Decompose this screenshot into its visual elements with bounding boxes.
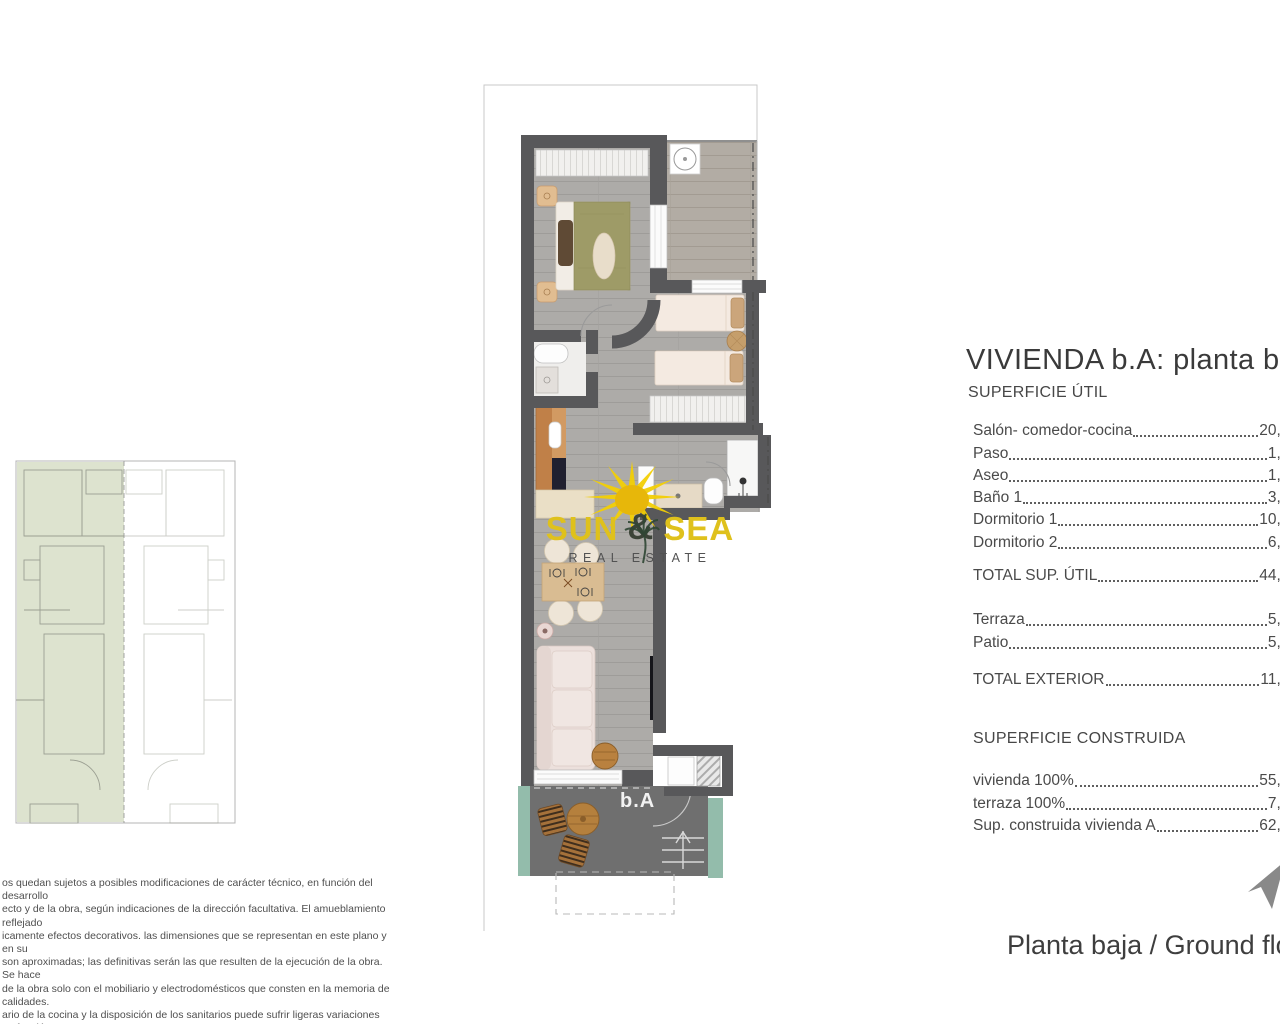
kitchen-sink: [549, 422, 561, 448]
extractor-fan-icon: [670, 144, 700, 174]
unit-label: b.A: [620, 790, 655, 813]
surface-row: Salón- comedor-cocina 20,81: [973, 418, 1280, 440]
dotted-leader: [1075, 785, 1258, 787]
surface-value: 10,01: [1259, 511, 1280, 529]
wardrobe: [536, 150, 648, 176]
surface-label: terraza 100%: [973, 795, 1065, 813]
surface-label: Dormitorio 2: [973, 534, 1057, 552]
surface-total-row: TOTAL EXTERIOR 11,27: [973, 667, 1280, 689]
north-arrow-icon: [1248, 861, 1280, 909]
surface-table: Salón- comedor-cocina 20,81 Paso 1,35 As…: [973, 418, 1280, 835]
washbasin: [536, 367, 558, 393]
surface-row: Dormitorio 1 10,01: [973, 507, 1280, 529]
surface-row: vivienda 100% 55,31: [973, 768, 1280, 790]
single-bed: [655, 351, 743, 385]
sofa: [537, 646, 595, 770]
surface-row: Dormitorio 2 6,83: [973, 529, 1280, 551]
nightstand: [537, 282, 557, 302]
dining-chair: [549, 601, 574, 626]
section-header-useful: SUPERFICIE ÚTIL: [968, 384, 1108, 402]
disclaimer-line: de la obra solo con el mobiliario y elec…: [2, 983, 394, 1009]
surface-value: 5,72: [1268, 611, 1280, 629]
surface-total-row: TOTAL SUP. ÚTIL 44,29: [973, 563, 1280, 585]
shower-head: [740, 478, 747, 485]
disclaimer-line: ario de la cocina y la disposición de lo…: [2, 1009, 394, 1024]
planter-strip: [518, 786, 530, 876]
key-plan-highlighted-unit: [17, 462, 124, 822]
nightstand: [537, 186, 557, 206]
key-plan: [16, 461, 235, 823]
surface-row: terraza 100% 7,54: [973, 790, 1280, 812]
dotted-leader: [1098, 580, 1258, 582]
legal-disclaimer: os quedan sujetos a posibles modificacio…: [2, 877, 394, 1024]
surface-label: TOTAL SUP. ÚTIL: [973, 567, 1097, 585]
logo-word-sun: SUN: [546, 512, 619, 545]
bathtub: [534, 344, 568, 363]
surface-value: 1,35: [1268, 445, 1280, 463]
double-bed: [556, 202, 630, 290]
surface-value: 1,68: [1268, 467, 1280, 485]
dotted-leader: [1133, 435, 1258, 437]
disclaimer-line: ecto y de la obra, según indicaciones de…: [2, 903, 394, 929]
brochure-page: SUN&SEA REAL ESTATE b.A VIVIENDA b.A: pl…: [0, 0, 1280, 1024]
surface-value: 6,83: [1268, 534, 1280, 552]
surface-label: Dormitorio 1: [973, 511, 1057, 529]
surface-label: Paso: [973, 445, 1008, 463]
surface-label: Patio: [973, 634, 1008, 652]
dotted-leader: [1058, 524, 1258, 526]
surface-row: Terraza 5,72: [973, 607, 1280, 629]
surface-label: Baño 1: [973, 489, 1022, 507]
dotted-leader: [1106, 684, 1260, 686]
logo-tagline: REAL ESTATE: [540, 551, 740, 565]
logo-word-sea: SEA: [663, 512, 734, 545]
surface-label: Salón- comedor-cocina: [973, 422, 1132, 440]
dotted-leader: [1009, 480, 1266, 482]
surface-value: 55,31: [1259, 772, 1280, 790]
surface-value: 7,54: [1268, 795, 1280, 813]
surface-row: Aseo 1,68: [973, 463, 1280, 485]
surface-label: Aseo: [973, 467, 1008, 485]
dotted-leader: [1066, 808, 1267, 810]
bedroom2: [650, 295, 747, 422]
disclaimer-line: son aproximadas; las definitivas serán l…: [2, 956, 394, 982]
surface-value: 20,81: [1259, 422, 1280, 440]
disclaimer-line: os quedan sujetos a posibles modificacio…: [2, 877, 394, 903]
plan-caption: Planta baja / Ground floor: [1007, 930, 1280, 961]
outdoor-table: [567, 803, 599, 835]
disclaimer-line: icamente efectos decorativos. las dimens…: [2, 930, 394, 956]
surface-value: 62,85: [1259, 817, 1280, 835]
surface-value: 11,27: [1260, 671, 1280, 689]
single-bed: [656, 295, 744, 331]
surface-label: Terraza: [973, 611, 1025, 629]
coffee-table: [592, 743, 618, 769]
section-header-built: SUPERFICIE CONSTRUIDA: [973, 730, 1280, 748]
dotted-leader: [1058, 547, 1266, 549]
planter-strip: [708, 798, 723, 878]
dotted-leader: [1009, 458, 1266, 460]
surface-row: Paso 1,35: [973, 440, 1280, 462]
wardrobe: [650, 396, 746, 422]
storage-box: [668, 756, 720, 786]
dotted-leader: [1023, 502, 1267, 504]
surface-label: Sup. construida vivienda A: [973, 817, 1156, 835]
dotted-leader: [1009, 647, 1266, 649]
agency-logo: SUN&SEA REAL ESTATE: [540, 455, 740, 575]
dotted-leader: [1026, 624, 1267, 626]
surface-row: Sup. construida vivienda A 62,85: [973, 813, 1280, 835]
surface-row: Baño 1 3,61: [973, 485, 1280, 507]
patio-area: [667, 141, 757, 288]
surface-row: Patio 5,55: [973, 629, 1280, 651]
surface-value: 3,61: [1268, 489, 1280, 507]
dotted-leader: [1157, 830, 1259, 832]
surface-label: vivienda 100%: [973, 772, 1074, 790]
page-title: VIVIENDA b.A: planta baja: [966, 344, 1280, 377]
surface-label: TOTAL EXTERIOR: [973, 671, 1105, 689]
surface-value: 44,29: [1259, 567, 1280, 585]
terrace-projection-outline: [556, 872, 674, 914]
surface-value: 5,55: [1268, 634, 1280, 652]
